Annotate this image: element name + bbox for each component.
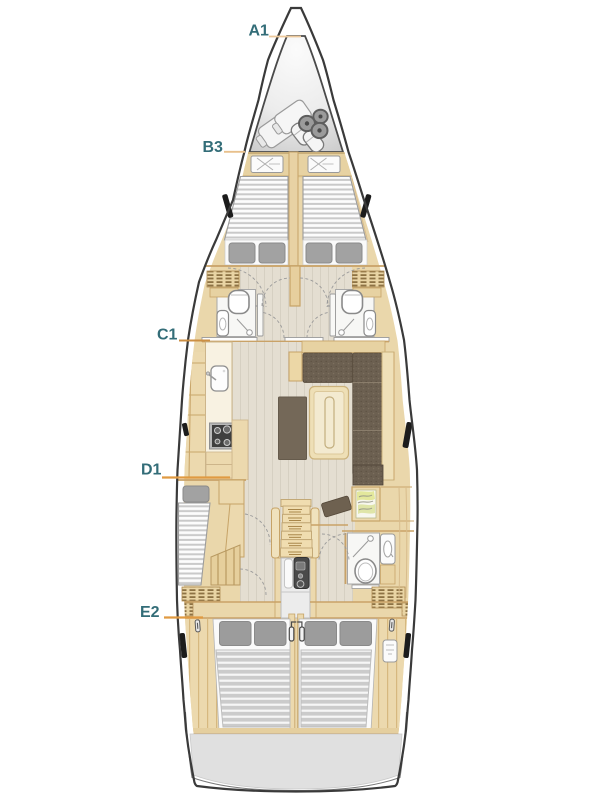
svg-text:A1: A1 <box>249 23 270 40</box>
svg-text:D1: D1 <box>141 462 162 479</box>
svg-text:C1: C1 <box>157 327 178 344</box>
svg-text:E2: E2 <box>140 604 160 621</box>
svg-text:B3: B3 <box>203 139 224 156</box>
